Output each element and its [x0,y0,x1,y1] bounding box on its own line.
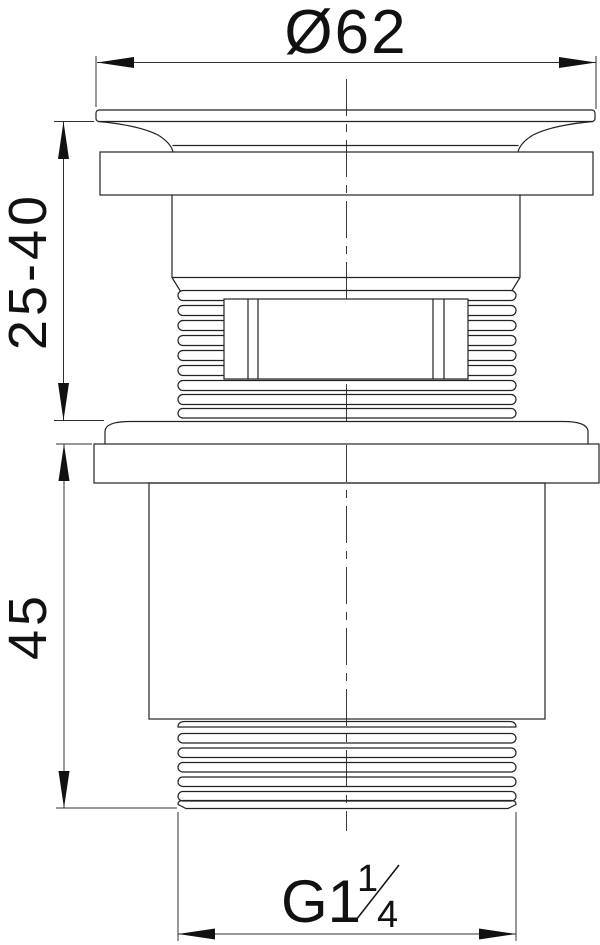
thread-label-denominator: 4 [377,894,398,936]
dimension-upper-height-range: 25-40 [0,122,104,421]
dimension-label-diameter: Ø62 [284,0,407,67]
dimension-label-upper-range: 25-40 [0,192,58,350]
arrow-down-icon [59,771,70,808]
dimension-thread-size: G1 1 4 [178,812,516,941]
locknut-body [224,299,468,379]
thread-label-numerator: 1 [357,858,378,900]
lower-flange-hub [105,422,588,445]
cap-underside-right-curve [518,122,593,153]
locknut [224,299,468,379]
dimension-label-thread: G1 1 4 [281,858,399,936]
arrow-up-icon [58,122,69,160]
arrow-left-icon [178,929,215,940]
arrow-right-icon [479,929,516,940]
thread-label-main: G1 [281,868,361,935]
arrow-right-icon [559,57,596,68]
technical-drawing-sheet: Ø62 25-40 45 G1 1 4 [0,0,600,945]
arrow-down-icon [58,383,69,421]
arrow-up-icon [59,444,70,481]
drawing-canvas: Ø62 25-40 45 G1 1 4 [0,0,600,945]
arrow-left-icon [97,57,134,68]
dimension-body-height: 45 [0,444,177,808]
push-cap-disc [96,110,595,122]
cap-underside-left-curve [98,122,173,153]
dimension-label-body-height: 45 [0,592,58,660]
